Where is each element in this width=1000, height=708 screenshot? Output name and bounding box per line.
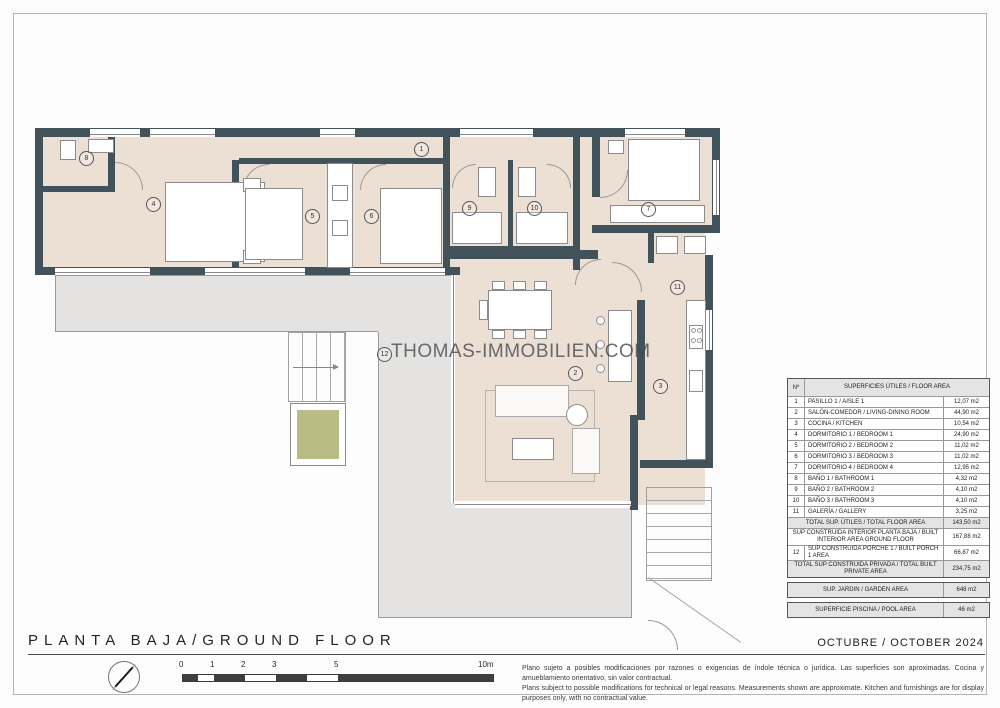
row-num: 5 <box>788 441 805 451</box>
dining-table <box>488 290 552 330</box>
wardrobe-shelf <box>332 185 348 201</box>
header-label: SUPERFICIES ÚTILES / FLOOR AREA <box>805 379 989 396</box>
bed-double <box>628 139 700 201</box>
row-label: SUP. JARDIN / GARDEN AREA <box>788 583 943 597</box>
wall <box>443 246 580 252</box>
area-row: 9BAÑO 2 / BATHROOM 24,10 m2 <box>788 484 989 495</box>
wall <box>648 233 654 263</box>
row-label: DORMITORIO 4 / BEDROOM 4 <box>805 463 943 473</box>
row-label: DORMITORIO 2 / BEDROOM 2 <box>805 441 943 451</box>
room-label-11: 11 <box>670 280 685 295</box>
scale-label: 10m <box>478 660 494 669</box>
wall <box>592 225 720 233</box>
row-value: 3,25 m2 <box>943 507 989 517</box>
room-label-2: 2 <box>568 366 583 381</box>
kitchen-sink <box>689 370 703 392</box>
window <box>625 129 685 137</box>
row-value: 234,75 m2 <box>943 561 989 577</box>
room-number: 11 <box>674 284 681 291</box>
row-value: 12,07 m2 <box>943 397 989 407</box>
window <box>706 310 712 350</box>
area-row: 3COCINA / KITCHEN10,54 m2 <box>788 418 989 429</box>
bed-double <box>245 188 303 260</box>
row-num: 10 <box>788 496 805 506</box>
row-num: 4 <box>788 430 805 440</box>
room-number: 7 <box>647 206 651 213</box>
room-number: 2 <box>574 370 578 377</box>
window <box>460 129 533 137</box>
sliding-door <box>205 268 305 275</box>
built-interior-row: SUP CONSTRUIDA INTERIOR PLANTA BAJA / BU… <box>788 528 989 545</box>
chair <box>479 300 488 320</box>
chair <box>513 281 526 290</box>
area-row: 4DORMITORIO 1 / BEDROOM 124,90 m2 <box>788 429 989 440</box>
row-label: DORMITORIO 1 / BEDROOM 1 <box>805 430 943 440</box>
chair <box>534 330 547 339</box>
row-value: 46 m2 <box>943 603 989 617</box>
glass-wall <box>451 275 455 503</box>
row-value: 167,88 m2 <box>943 529 989 545</box>
chair <box>492 281 505 290</box>
sofa <box>495 385 569 417</box>
stairs <box>288 332 346 402</box>
row-value: 44,90 m2 <box>943 408 989 418</box>
porch-west <box>378 332 455 618</box>
row-num: 12 <box>788 546 805 560</box>
row-label: TOTAL SUP CONSTRUIDA PRIVADA / TOTAL BUI… <box>788 561 943 577</box>
room-label-6: 6 <box>364 209 379 224</box>
row-label: SALÓN-COMEDOR / LIVING-DINING ROOM <box>805 408 943 418</box>
planter <box>297 410 339 459</box>
porch-outline <box>631 508 632 618</box>
row-num: 3 <box>788 419 805 429</box>
window <box>90 129 140 137</box>
room-label-4: 4 <box>146 197 161 212</box>
burner <box>697 338 702 343</box>
porch-north <box>55 275 455 332</box>
row-value: 4,10 m2 <box>943 485 989 495</box>
scale-segment <box>276 675 307 681</box>
wall <box>43 186 115 192</box>
wall <box>35 128 43 275</box>
row-num: 6 <box>788 452 805 462</box>
scale-label: 2 <box>241 660 245 669</box>
row-label: COCINA / KITCHEN <box>805 419 943 429</box>
watermark: THOMAS-IMMOBILIEN.COM <box>391 341 651 363</box>
title-rule <box>28 654 985 655</box>
area-row: 5DORMITORIO 2 / BEDROOM 211,02 m2 <box>788 440 989 451</box>
row-label: BAÑO 1 / BATHROOM 1 <box>805 474 943 484</box>
scale-bar <box>182 674 494 682</box>
burner <box>691 338 696 343</box>
porch-outline <box>378 617 632 618</box>
row-value: 66,87 m2 <box>943 546 989 560</box>
row-value: 10,54 m2 <box>943 419 989 429</box>
row-value: 143,50 m2 <box>943 518 989 528</box>
header-num: Nº <box>788 379 805 396</box>
area-table-main: Nº SUPERFICIES ÚTILES / FLOOR AREA 1PASI… <box>787 378 990 578</box>
wardrobe <box>327 163 353 268</box>
shower <box>452 212 502 244</box>
room-number: 5 <box>311 213 315 220</box>
row-value: 11,02 m2 <box>943 452 989 462</box>
garden-area-row: SUP. JARDIN / GARDEN AREA648 m2 <box>788 583 989 597</box>
north-arrow-icon <box>108 661 140 693</box>
disclaimer: Plano sujeto a posibles modificaciones p… <box>522 664 984 705</box>
row-value: 648 m2 <box>943 583 989 597</box>
armchair <box>572 428 600 474</box>
row-label: SUPERFICIE PISCINA / POOL AREA <box>788 603 943 617</box>
washer <box>684 236 706 254</box>
wall <box>630 415 638 510</box>
stairs-direction-arrow <box>293 367 338 368</box>
bar-stool <box>596 316 605 325</box>
chair <box>534 281 547 290</box>
room-number: 1 <box>420 146 424 153</box>
wardrobe-shelf <box>332 220 348 236</box>
row-num: 8 <box>788 474 805 484</box>
row-num: 11 <box>788 507 805 517</box>
row-num: 9 <box>788 485 805 495</box>
area-table-header: Nº SUPERFICIES ÚTILES / FLOOR AREA <box>788 379 989 396</box>
room-label-8: 8 <box>79 151 94 166</box>
row-value: 12,95 m2 <box>943 463 989 473</box>
porch-outline <box>55 275 56 332</box>
room-number: 6 <box>370 213 374 220</box>
total-private-row: TOTAL SUP CONSTRUIDA PRIVADA / TOTAL BUI… <box>788 560 989 577</box>
room-label-10: 10 <box>527 201 542 216</box>
area-row: 2SALÓN-COMEDOR / LIVING-DINING ROOM44,90… <box>788 407 989 418</box>
disclaimer-es: Plano sujeto a posibles modificaciones p… <box>522 664 984 684</box>
scale-segment <box>214 675 245 681</box>
scale-label: 1 <box>210 660 214 669</box>
scale-segment <box>183 675 198 681</box>
toilet <box>60 140 76 160</box>
row-value: 11,02 m2 <box>943 441 989 451</box>
row-num: 7 <box>788 463 805 473</box>
porch-outline <box>378 332 379 618</box>
garden-area-box: SUP. JARDIN / GARDEN AREA648 m2 <box>787 582 990 598</box>
room-label-12: 12 <box>377 347 392 362</box>
window <box>320 129 355 137</box>
room-label-1: 1 <box>414 142 429 157</box>
room-number: 10 <box>531 205 539 212</box>
disclaimer-en: Plans subject to possible modifications … <box>522 684 984 704</box>
side-table <box>566 404 588 426</box>
shower <box>516 212 568 244</box>
sliding-door <box>350 268 445 275</box>
total-floor-area-row: TOTAL SUP. ÚTILES / TOTAL FLOOR AREA143,… <box>788 517 989 528</box>
sink <box>518 167 536 197</box>
row-label: GALERÍA / GALLERY <box>805 507 943 517</box>
area-row: 11GALERÍA / GALLERY3,25 m2 <box>788 506 989 517</box>
date-label: OCTUBRE / OCTOBER 2024 <box>817 637 984 649</box>
row-value: 24,90 m2 <box>943 430 989 440</box>
north-needle <box>115 667 134 688</box>
area-row: 7DORMITORIO 4 / BEDROOM 412,95 m2 <box>788 462 989 473</box>
burner <box>697 328 702 333</box>
glass-wall <box>455 501 631 506</box>
chair <box>492 330 505 339</box>
room-number: 3 <box>659 383 663 390</box>
room-label-5: 5 <box>305 209 320 224</box>
area-row: 10BAÑO 3 / BATHROOM 34,10 m2 <box>788 495 989 506</box>
scale-label: 5 <box>334 660 338 669</box>
row-label: SUP CONSTRUIDA PORCHE 1 / BUILT PORCH 1 … <box>805 546 943 560</box>
coffee-table <box>512 438 554 460</box>
burner <box>691 328 696 333</box>
pool-area-box: SUPERFICIE PISCINA / POOL AREA46 m2 <box>787 602 990 618</box>
wall <box>592 137 600 197</box>
room-number: 4 <box>152 201 156 208</box>
room-number: 12 <box>381 351 389 358</box>
pool-area-row: SUPERFICIE PISCINA / POOL AREA46 m2 <box>788 603 989 617</box>
bed-double <box>380 188 442 264</box>
area-table: Nº SUPERFICIES ÚTILES / FLOOR AREA 1PASI… <box>787 378 990 618</box>
row-label: SUP CONSTRUIDA INTERIOR PLANTA BAJA / BU… <box>788 529 943 545</box>
window <box>150 129 215 137</box>
row-label: DORMITORIO 3 / BEDROOM 3 <box>805 452 943 462</box>
bar-stool <box>596 364 605 373</box>
porch-south <box>455 508 632 618</box>
scale-label: 0 <box>179 660 183 669</box>
area-row: 6DORMITORIO 3 / BEDROOM 311,02 m2 <box>788 451 989 462</box>
room-label-9: 9 <box>462 201 477 216</box>
room-number: 8 <box>85 155 89 162</box>
scale-segment <box>338 675 493 681</box>
room-label-7: 7 <box>641 202 656 217</box>
washer <box>656 236 678 254</box>
row-value: 4,32 m2 <box>943 474 989 484</box>
room-number: 9 <box>468 205 472 212</box>
row-num: 1 <box>788 397 805 407</box>
wall <box>508 160 513 250</box>
chair <box>513 330 526 339</box>
wall <box>705 255 713 468</box>
row-label: BAÑO 2 / BATHROOM 2 <box>805 485 943 495</box>
nightstand <box>608 140 624 154</box>
row-label: BAÑO 3 / BATHROOM 3 <box>805 496 943 506</box>
exterior-stairs <box>646 487 712 581</box>
area-row: 1PASILLO 1 / AISLE 112,07 m2 <box>788 396 989 407</box>
row-num: 2 <box>788 408 805 418</box>
plan-sheet: 1 2 3 4 5 6 7 8 9 10 11 12 THOMAS-IMMOBI… <box>0 0 1000 708</box>
porch-area-row: 12SUP CONSTRUIDA PORCHE 1 / BUILT PORCH … <box>788 545 989 560</box>
area-row: 8BAÑO 1 / BATHROOM 14,32 m2 <box>788 473 989 484</box>
page-title: PLANTA BAJA/GROUND FLOOR <box>28 632 397 649</box>
scale-label: 3 <box>272 660 276 669</box>
window <box>713 160 719 215</box>
sink <box>88 139 114 153</box>
wall <box>640 460 713 468</box>
sink <box>478 167 496 197</box>
row-label: TOTAL SUP. ÚTILES / TOTAL FLOOR AREA <box>788 518 943 528</box>
row-value: 4,10 m2 <box>943 496 989 506</box>
room-label-3: 3 <box>653 379 668 394</box>
porch-outline <box>55 275 455 276</box>
wardrobe <box>610 205 705 223</box>
sliding-door <box>55 268 150 275</box>
row-label: PASILLO 1 / AISLE 1 <box>805 397 943 407</box>
